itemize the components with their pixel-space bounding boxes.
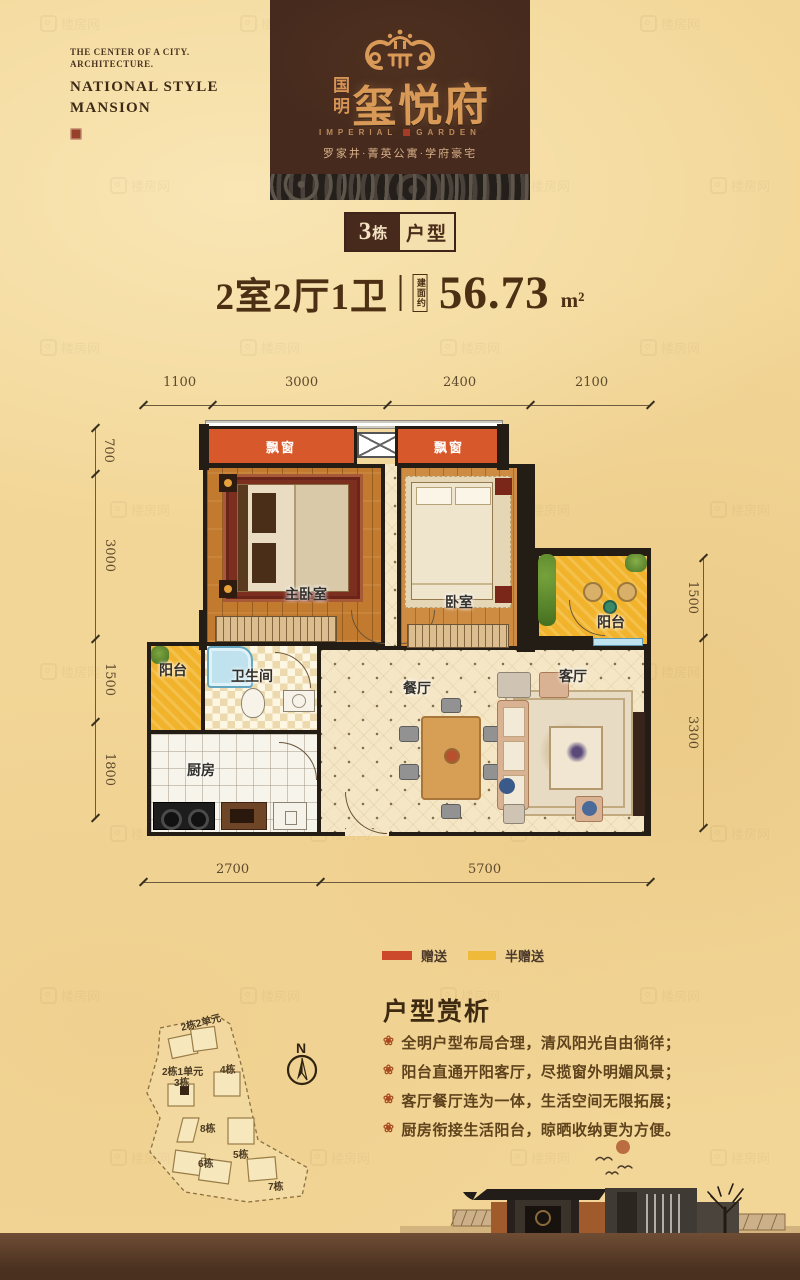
watermark: 楼房网	[240, 338, 300, 357]
watermark: 楼房网	[640, 338, 700, 357]
dim-left-1: 700	[101, 438, 116, 463]
seal-icon	[70, 128, 82, 140]
watermark: 楼房网	[710, 176, 770, 195]
analysis-title: 户型赏析	[383, 992, 491, 1028]
watermark: 楼房网	[40, 338, 100, 357]
wall-post	[497, 424, 509, 470]
site-label: 5栋	[233, 1146, 249, 1161]
dining-label: 餐厅	[403, 678, 431, 698]
sofa-main	[497, 700, 529, 810]
slogan-line-2: ARCHITECTURE.	[70, 58, 219, 70]
dining-chair	[399, 764, 419, 780]
site-label: 6栋	[198, 1155, 214, 1170]
site-label: 3栋	[174, 1074, 190, 1089]
floor-plan: 飘窗 飘窗	[145, 420, 657, 845]
nightstand	[219, 580, 237, 598]
master-bed	[237, 484, 349, 592]
area-value: 56.73	[439, 266, 550, 320]
wall-post	[199, 424, 209, 470]
balcony-left-label: 阳台	[159, 660, 187, 680]
nightstand	[495, 586, 512, 603]
analysis-bullet: ❀ 全明户型布局合理，清风阳光自由徜徉；	[383, 1032, 723, 1053]
poster: 楼房网楼房网楼房网楼房网楼房网楼房网楼房网楼房网楼房网楼房网楼房网楼房网楼房网楼…	[0, 0, 800, 1280]
watermark: 楼房网	[110, 176, 170, 195]
wall-post	[199, 610, 207, 650]
dim-right-1: 1500	[685, 581, 700, 614]
watermark: 楼房网	[440, 338, 500, 357]
dim-line-top	[143, 405, 650, 406]
area-unit: m²	[561, 288, 585, 320]
slogan-line-4: MANSION	[70, 98, 219, 119]
brand-name-side: 国明	[327, 76, 352, 118]
bay-window-left-label: 飘窗	[266, 437, 296, 456]
watermark: 楼房网	[40, 14, 100, 33]
bedroom-bed	[411, 482, 493, 600]
dim-top-4: 2100	[575, 375, 608, 390]
bay-window-right-label: 飘窗	[434, 437, 464, 456]
brand-banner: 国明 玺悦府 IMPERIAL GARDEN 罗家井·菁英公寓·学府豪宅	[270, 0, 530, 200]
stove	[153, 802, 215, 830]
dim-left-2: 3000	[102, 539, 117, 572]
dining-chair	[441, 698, 461, 713]
brand-name-main: 玺悦府	[351, 69, 490, 135]
balcony-plants	[538, 554, 556, 626]
coffee-table	[549, 726, 603, 790]
bay-window-left: 飘窗	[205, 426, 357, 466]
wall-balcony-bottom	[535, 636, 593, 648]
master-bedroom-label: 主卧室	[285, 584, 327, 604]
bay-window-right: 飘窗	[395, 426, 503, 466]
balcony-glazing	[593, 638, 643, 646]
brand-en-left: IMPERIAL	[319, 128, 397, 137]
analysis-bullet: ❀ 客厅餐厅连为一体，生活空间无限拓展；	[383, 1090, 723, 1111]
legend-swatch-gift	[382, 951, 412, 960]
analysis-bullet: ❀ 阳台直通开阳客厅，尽揽窗外明媚风景；	[383, 1061, 723, 1082]
red-square-icon	[403, 129, 410, 136]
analysis-bullet: ❀ 厨房衔接生活阳台，晾晒收纳更为方便。	[383, 1119, 723, 1140]
bedroom-label: 卧室	[445, 592, 473, 612]
living-label: 客厅	[559, 666, 587, 686]
brand-name-en: IMPERIAL GARDEN	[319, 128, 481, 137]
balcony-plants	[625, 554, 647, 572]
gate-illustration	[395, 1148, 800, 1240]
dining-chair	[441, 804, 461, 819]
dim-right-2: 3300	[685, 716, 700, 749]
bath-sink	[283, 690, 315, 712]
badge-type-label: 户型	[400, 214, 454, 250]
armchair	[497, 672, 531, 698]
flower-bullet-icon: ❀	[383, 1061, 394, 1082]
watermark: 楼房网	[40, 986, 100, 1005]
slogan-line-1: THE CENTER OF A CITY.	[70, 46, 219, 58]
site-plan: 2栋2单元 2栋1单元 3栋 4栋 8栋 5栋 6栋 7栋 N	[130, 1000, 340, 1220]
unit-spec-row: 2室2厅1卫 建面约 56.73 m²	[216, 266, 585, 320]
floor-vase	[499, 778, 515, 794]
wall-bedroom-balcony	[517, 464, 535, 652]
slogan-line-3: NATIONAL STYLE	[70, 77, 219, 98]
dim-left-3: 1500	[102, 663, 117, 696]
master-wardrobe	[215, 616, 337, 642]
dim-top-2: 3000	[285, 375, 318, 390]
dim-line-left	[95, 428, 96, 818]
nightstand	[219, 474, 237, 492]
spec-divider	[399, 275, 401, 311]
dim-bottom-1: 2700	[216, 862, 249, 877]
watermark: 楼房网	[710, 824, 770, 843]
kitchen-cabinet	[221, 802, 267, 830]
balcony-chair	[583, 582, 603, 602]
legend-swatch-half	[468, 951, 496, 960]
armchair	[575, 796, 603, 822]
dim-line-bottom	[143, 882, 650, 883]
site-label: 4栋	[220, 1061, 236, 1076]
area-prefix-box: 建面约	[412, 274, 428, 312]
toilet	[241, 688, 265, 718]
site-label: 7栋	[268, 1178, 284, 1193]
kitchen-sink	[273, 802, 307, 830]
balcony-right-label: 阳台	[597, 612, 625, 632]
banner-tagline: 罗家井·菁英公寓·学府豪宅	[323, 145, 477, 161]
dining-chair	[399, 726, 419, 742]
bedroom-wardrobe	[407, 624, 509, 648]
dining-table	[421, 716, 481, 800]
dim-top-3: 2400	[443, 375, 476, 390]
stone-texture-strip	[270, 174, 530, 200]
watermark: 楼房网	[40, 662, 100, 681]
kitchen-label: 厨房	[187, 760, 215, 780]
tv-cabinet	[633, 712, 645, 816]
balcony-chair	[617, 582, 637, 602]
building-type-badge: 3栋 户型	[344, 212, 456, 252]
legend: 赠送 半赠送	[382, 946, 544, 965]
legend-label-gift: 赠送	[421, 946, 447, 965]
watermark: 楼房网	[710, 500, 770, 519]
site-plan-map	[130, 1000, 340, 1220]
dim-left-4: 1800	[102, 753, 117, 786]
site-label: 8栋	[200, 1120, 216, 1135]
bathroom-label: 卫生间	[231, 666, 273, 686]
watermark: 楼房网	[640, 14, 700, 33]
nightstand	[495, 478, 512, 495]
flower-bullet-icon: ❀	[383, 1119, 394, 1140]
badge-building: 3栋	[346, 214, 400, 250]
flower-bullet-icon: ❀	[383, 1090, 394, 1111]
room-layout: 2室2厅1卫	[216, 266, 389, 320]
legend-label-half: 半赠送	[505, 946, 544, 965]
top-left-block: THE CENTER OF A CITY. ARCHITECTURE. NATI…	[70, 46, 219, 140]
dim-bottom-2: 5700	[468, 862, 501, 877]
dim-top-1: 1100	[163, 375, 196, 390]
ground-strip	[0, 1233, 800, 1280]
brand-en-right: GARDEN	[416, 128, 481, 137]
dim-line-right	[703, 558, 704, 828]
flower-bullet-icon: ❀	[383, 1032, 394, 1053]
compass-n-label: N	[296, 1040, 306, 1056]
watermark: 楼房网	[640, 986, 700, 1005]
pouf	[503, 804, 525, 824]
